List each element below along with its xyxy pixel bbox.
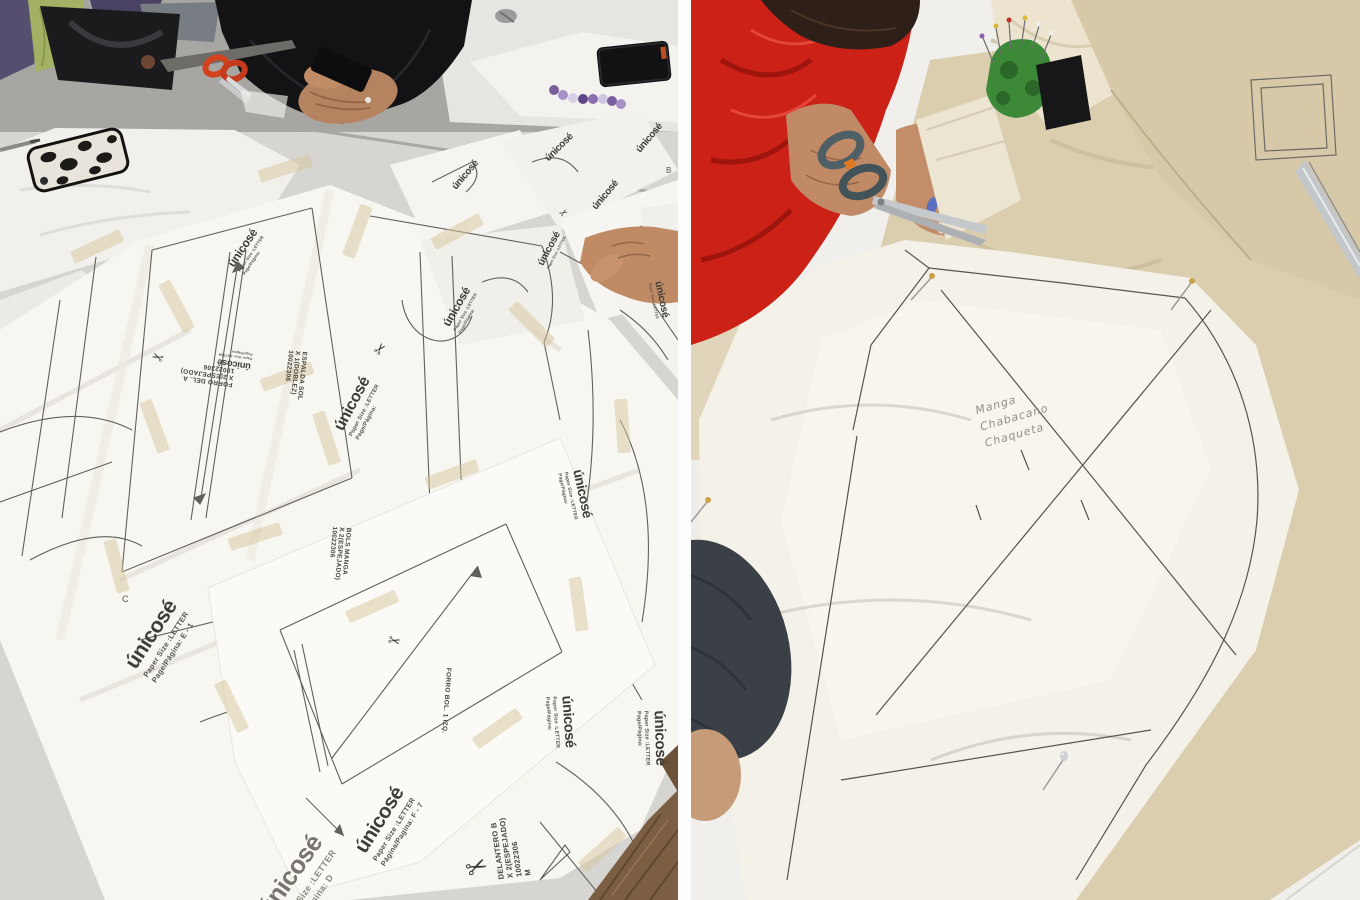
black-bag xyxy=(40,6,180,90)
pattern-letter-c: C xyxy=(122,594,129,604)
unicose-logo: únicosé Paper Size :LETTER Page/Página: xyxy=(544,695,578,749)
photo-collage: únicosé Paper Size :LETTER Page/Página: … xyxy=(0,0,1360,900)
pattern-letter-b: B xyxy=(666,166,671,175)
smartphone xyxy=(596,40,672,87)
scissors-pivot xyxy=(878,199,885,206)
right-photo-illustration xyxy=(691,0,1360,900)
photo-left-pattern-table: únicosé Paper Size :LETTER Page/Página: … xyxy=(0,0,678,900)
photo-right-fabric-cutting: Manga Chabacano Chaqueta xyxy=(691,0,1360,900)
unicose-logo: únicosé Paper Size :LETTER Page/Página: xyxy=(636,710,670,766)
left-photo-illustration xyxy=(0,0,678,900)
photo-gap xyxy=(678,0,691,900)
